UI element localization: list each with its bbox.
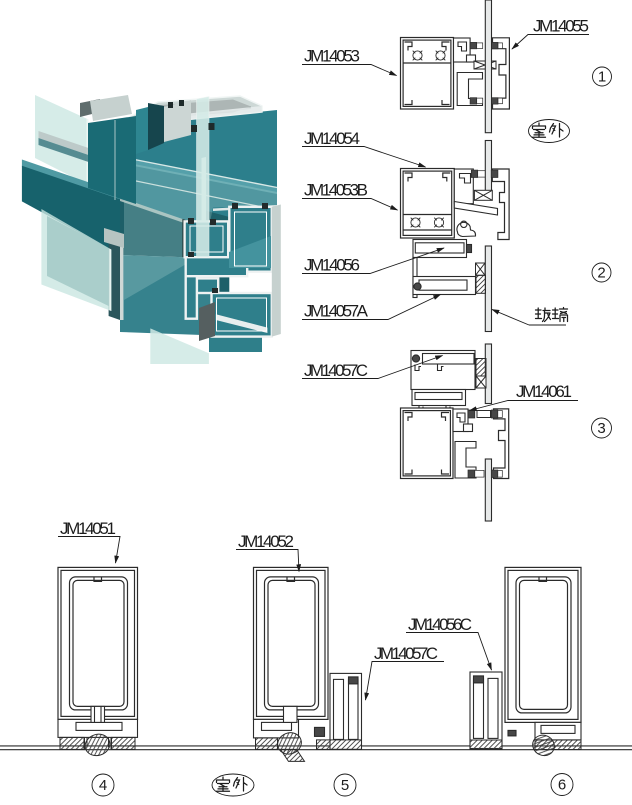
- svg-text:JM14057C: JM14057C: [374, 644, 438, 663]
- svg-text:3: 3: [597, 420, 605, 437]
- svg-text:5: 5: [341, 777, 349, 794]
- svg-text:JM14057A: JM14057A: [304, 302, 369, 321]
- svg-text:JM14056: JM14056: [304, 256, 360, 275]
- svg-text:1: 1: [598, 69, 606, 86]
- svg-text:JM14056C: JM14056C: [408, 615, 472, 634]
- svg-text:2: 2: [597, 265, 605, 282]
- svg-text:4: 4: [99, 777, 107, 794]
- svg-text:6: 6: [558, 777, 566, 794]
- svg-text:JM14053B: JM14053B: [304, 181, 368, 200]
- svg-text:JM14051: JM14051: [60, 519, 116, 538]
- svg-text:JM14052: JM14052: [238, 532, 294, 551]
- svg-text:JM14057C: JM14057C: [304, 361, 368, 380]
- svg-text:JM14054: JM14054: [304, 129, 360, 148]
- svg-text:JM14061: JM14061: [516, 382, 572, 401]
- svg-text:JM14055: JM14055: [533, 17, 589, 36]
- svg-text:JM14053: JM14053: [304, 47, 360, 66]
